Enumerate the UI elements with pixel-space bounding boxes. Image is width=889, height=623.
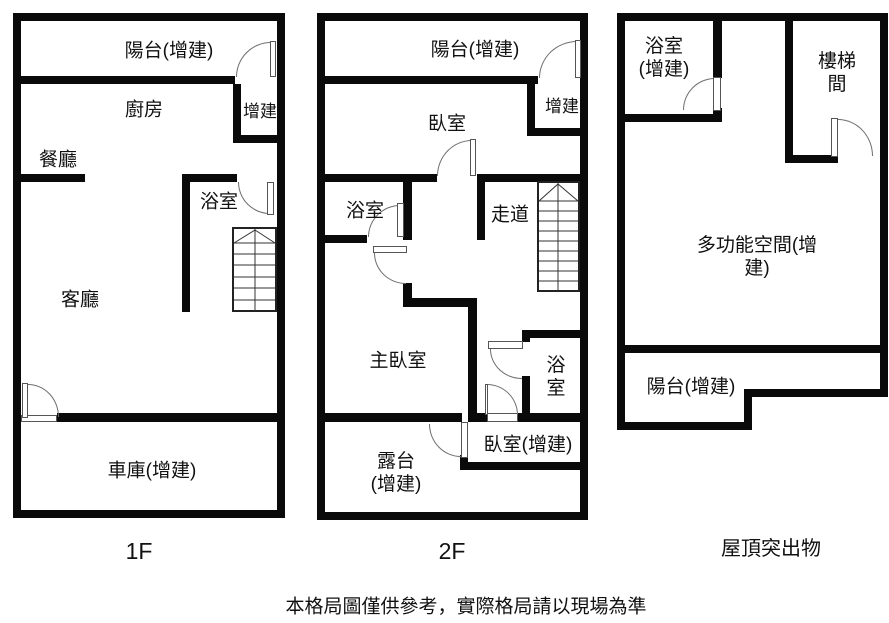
floorplan-canvas: 陽台(增建) 廚房 增建 餐廳 浴室 客廳 車庫(增建) 1F [0,0,889,623]
room-label-balcony-roof: 陽台(增建) [647,377,736,400]
wall [617,13,888,21]
wall [785,13,793,163]
wall [617,422,752,430]
wall [617,13,625,430]
door-leaf [831,118,838,157]
room-label-multipurpose: 多功能空間(增建) [691,235,823,281]
wall [880,13,888,397]
wall [744,389,888,397]
door-arc [683,78,715,110]
wall [713,13,722,78]
door-leaf [713,77,721,111]
room-label-bath-roof: 浴室 (增建) [639,36,690,82]
wall [617,345,888,353]
floor-label-roof: 屋頂突出物 [721,537,821,561]
floorplan-roof: 浴室 (增建) 樓梯間 多功能空間(增建) 陽台(增建) 屋頂突出物 [0,0,889,623]
door-arc [838,119,873,156]
wall [617,114,722,122]
room-label-stairwell: 樓梯間 [811,51,863,97]
disclaimer-caption: 本格局圖僅供參考，實際格局請以現場為準 [285,597,646,620]
